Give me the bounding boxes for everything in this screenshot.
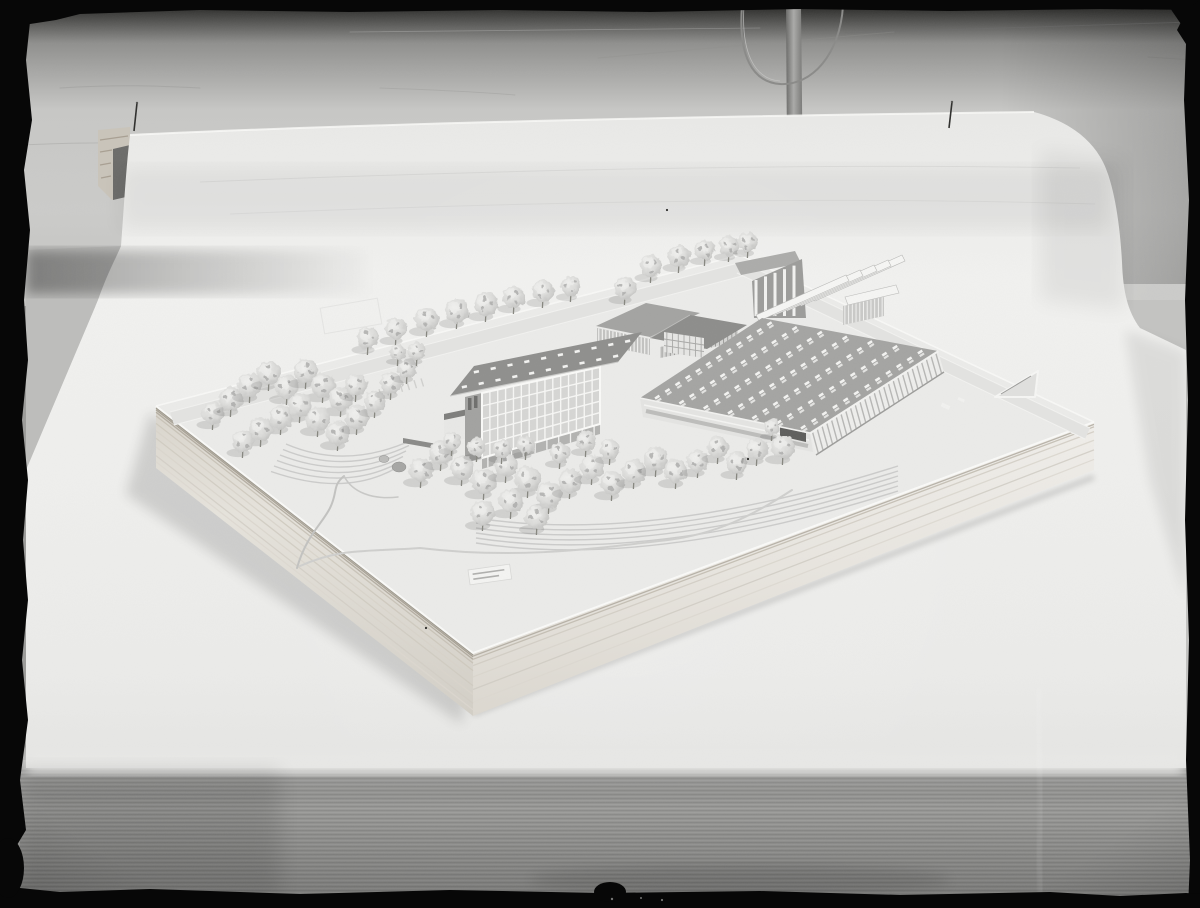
photograph-architectural-model bbox=[0, 0, 1200, 908]
film-grain bbox=[0, 0, 1200, 908]
scene-svg bbox=[0, 0, 1200, 908]
frame-bottom-blob bbox=[594, 882, 626, 902]
